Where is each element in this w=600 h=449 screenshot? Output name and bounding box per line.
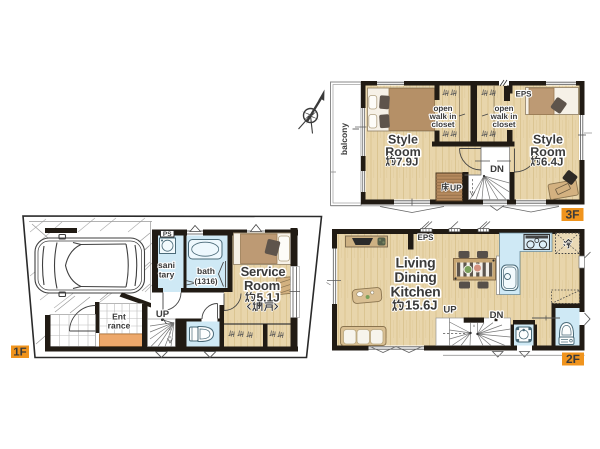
svg-text:PS: PS — [163, 231, 172, 238]
svg-text:UP: UP — [443, 305, 457, 316]
svg-text:EPS: EPS — [516, 90, 533, 99]
svg-text:15.6J: 15.6J — [405, 298, 438, 313]
svg-text:6.4J: 6.4J — [541, 157, 563, 169]
svg-text:1F: 1F — [13, 347, 26, 359]
svg-text:EPS: EPS — [418, 233, 435, 242]
svg-text:Service: Service — [241, 264, 286, 279]
svg-text:tary: tary — [159, 270, 175, 280]
svg-text:closet: closet — [431, 120, 454, 129]
svg-text:UP: UP — [450, 183, 462, 193]
svg-text:bath: bath — [197, 266, 215, 276]
svg-text:7.9J: 7.9J — [396, 157, 418, 169]
svg-text:3F: 3F — [565, 208, 579, 222]
svg-text:rance: rance — [108, 321, 131, 331]
svg-text:closet: closet — [492, 120, 515, 129]
svg-text:UP: UP — [156, 309, 170, 320]
svg-text:balcony: balcony — [339, 123, 349, 155]
svg-text:DN: DN — [490, 164, 504, 175]
svg-text:2F: 2F — [566, 352, 580, 366]
svg-text:DN: DN — [490, 310, 504, 321]
svg-text:(1316): (1316) — [194, 277, 217, 286]
svg-text:sani: sani — [158, 260, 175, 270]
